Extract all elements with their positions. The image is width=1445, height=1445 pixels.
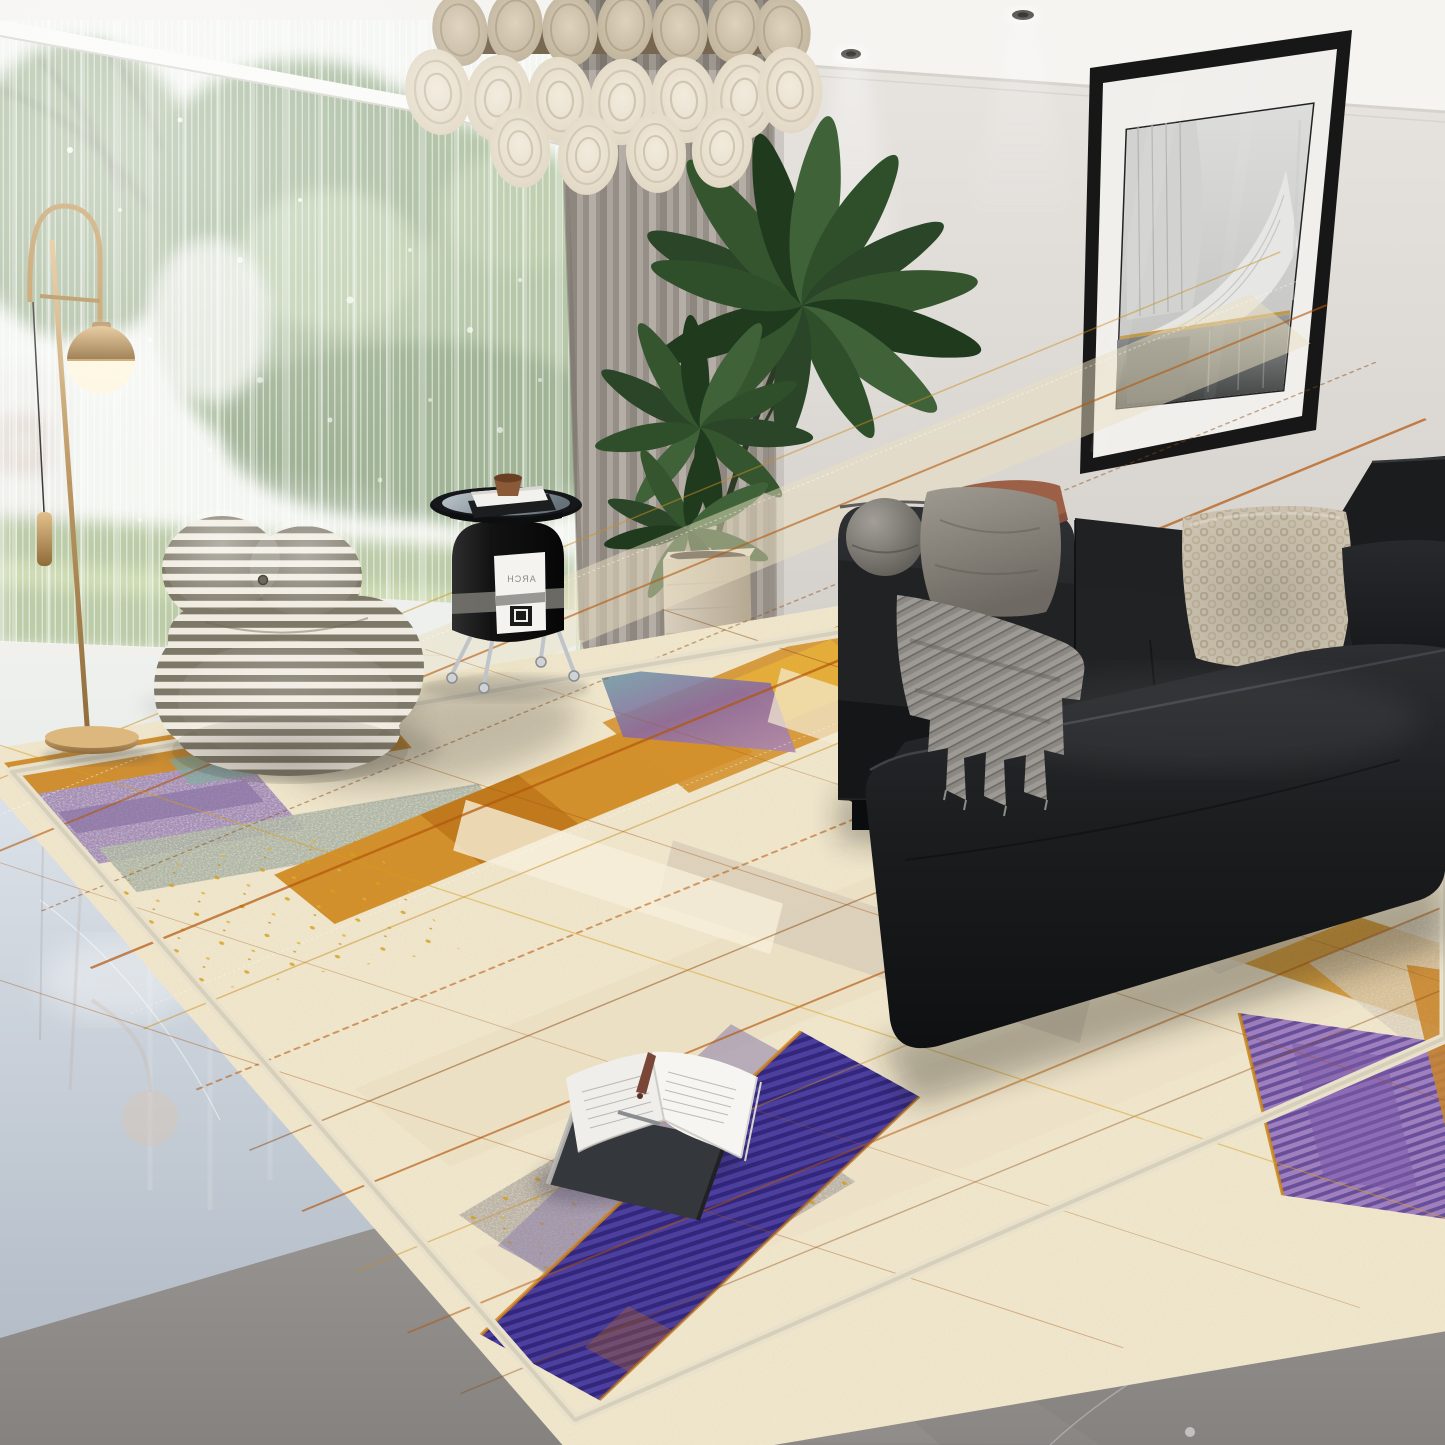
pillow-gray bbox=[920, 487, 1061, 617]
magazine: ARCH bbox=[494, 552, 546, 634]
pillow-ball bbox=[846, 498, 924, 576]
lamp-counterweight bbox=[37, 512, 52, 566]
chair-button bbox=[259, 576, 268, 585]
wooden-cup bbox=[494, 474, 522, 497]
living-room-photo: ARCH bbox=[0, 0, 1445, 1445]
magazine-title: ARCH bbox=[506, 574, 536, 584]
